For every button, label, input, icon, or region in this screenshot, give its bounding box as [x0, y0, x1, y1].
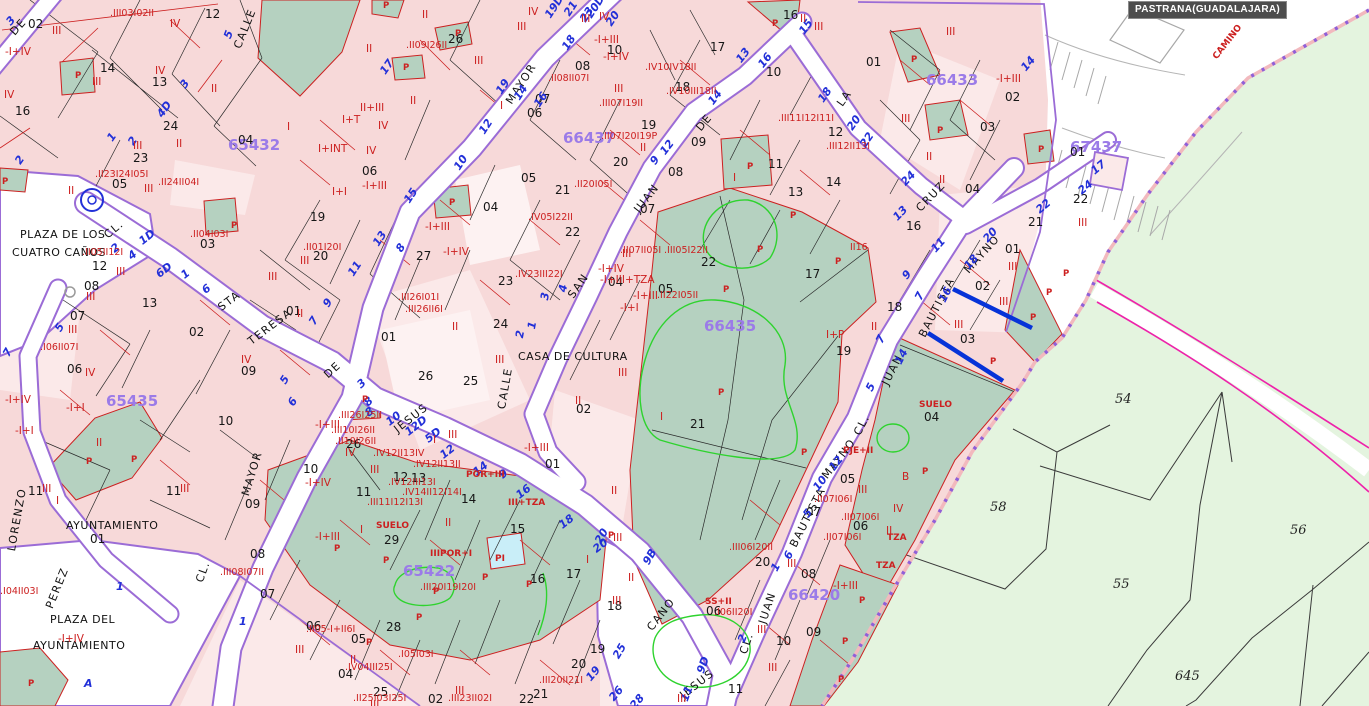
municipality-badge: PASTRANA(GUADALAJARA)	[1128, 1, 1287, 19]
height-code-label: II	[445, 518, 451, 529]
parcel-number-label: 07	[260, 588, 275, 600]
portal-number-label: 9	[321, 297, 334, 309]
patio-mark-label: P	[608, 532, 614, 541]
parcel-number-label: 28	[386, 621, 401, 633]
height-code-label: III	[954, 320, 963, 331]
height-code-label: III	[1008, 262, 1017, 273]
portal-number-label: 6D	[154, 261, 174, 280]
height-code-label: B	[902, 472, 909, 483]
special-code-label: SUELO	[919, 401, 952, 410]
parcel-number-label: 05	[521, 172, 536, 184]
portal-number-label: 3	[355, 377, 368, 390]
patio-mark-label: P	[75, 72, 81, 81]
height-code-label: III	[495, 355, 504, 366]
parcel-number-label: 01	[866, 56, 881, 68]
construction-code-label: .III07I19II	[599, 99, 643, 109]
map-viewport[interactable]: DECALLEMAYORDEJUANSANSTATERESADEJESUSMAY…	[0, 0, 1369, 706]
height-code-label: III	[295, 645, 304, 656]
portal-number-label: 4	[557, 283, 569, 292]
height-code-label: III	[757, 625, 766, 636]
parcel-number-label: 17	[566, 568, 581, 580]
construction-code-label: .II08II07I	[548, 74, 589, 84]
street-name-label: CL.	[194, 560, 212, 584]
block-number-label: 65435	[106, 394, 158, 409]
portal-number-label: 6	[286, 396, 299, 408]
height-code-label: -I+III	[425, 222, 450, 233]
parcel-number-label: 27	[416, 250, 431, 262]
special-code-label: CAMINO	[1212, 24, 1244, 62]
parcel-number-label: 19	[836, 345, 851, 357]
construction-code-label: .III12II13I	[826, 142, 870, 152]
parcel-number-label: 04	[924, 411, 939, 423]
parcel-number-label: 19	[641, 119, 656, 131]
street-name-label: BAUTISTA	[917, 276, 957, 339]
parcel-number-label: 07	[70, 310, 85, 322]
portal-number-label: 2	[13, 154, 26, 167]
construction-code-label: .III11I12I13I	[367, 498, 423, 508]
height-code-label: III	[370, 465, 379, 476]
patio-mark-label: P	[362, 396, 368, 405]
portal-number-label: 9	[648, 154, 661, 167]
portal-number-label: 5	[222, 29, 235, 40]
special-code-label: SUELO	[376, 522, 409, 531]
street-name-label: MAYOR	[240, 450, 264, 497]
patio-mark-label: P	[911, 56, 917, 65]
parcel-number-label: 21	[1028, 216, 1043, 228]
portal-number-label: 4D	[155, 99, 174, 119]
height-code-label: IV	[85, 368, 95, 379]
patio-mark-label: P	[383, 557, 389, 566]
patio-mark-label: P	[747, 163, 753, 172]
height-code-label: IV	[893, 504, 903, 515]
height-code-label: III	[86, 292, 95, 303]
parcel-number-label: 04	[238, 134, 253, 146]
patio-mark-label: P	[1046, 289, 1052, 298]
height-code-label: I	[287, 122, 290, 133]
parcel-number-label: 17	[710, 41, 725, 53]
height-code-label: I+T	[342, 115, 360, 126]
portal-number-label: 17	[378, 57, 396, 76]
construction-code-label: .II07I06I	[814, 495, 852, 505]
height-code-label: IV	[366, 146, 376, 157]
construction-code-label: .I05I03I	[398, 650, 434, 660]
special-code-label: SS+II	[705, 598, 732, 607]
parcel-number-label: 09	[806, 626, 821, 638]
construction-code-label: .IV05I22II	[528, 213, 573, 223]
portal-number-label: 18	[557, 513, 576, 531]
rural-parcel-label: 54	[1115, 393, 1132, 406]
portal-number-label: 17	[1089, 158, 1108, 176]
patio-mark-label: P	[86, 458, 92, 467]
construction-code-label: .III03I02II	[110, 9, 154, 19]
block-number-label: 66433	[926, 73, 978, 88]
parcel-number-label: 08	[801, 568, 816, 580]
patio-mark-label: P	[449, 199, 455, 208]
portal-number-label: 1	[105, 131, 118, 144]
height-code-label: -I+III	[362, 181, 387, 192]
construction-code-label: .III06I20II	[729, 543, 773, 553]
street-name-label: DE	[694, 112, 714, 133]
patio-mark-label: P	[416, 614, 422, 623]
special-code-label: PJE+II	[843, 447, 873, 456]
height-code-label: IV	[378, 121, 388, 132]
portal-number-label: 28	[628, 692, 646, 706]
street-name-label: CALLE	[496, 367, 514, 410]
parcel-number-label: 09	[245, 498, 260, 510]
patio-mark-label: P	[937, 127, 943, 136]
height-code-label: III	[52, 26, 61, 37]
height-code-label: II+III	[360, 103, 384, 114]
parcel-number-label: 21	[533, 688, 548, 700]
portal-number-label: 5	[864, 381, 877, 393]
height-code-label: III	[999, 297, 1008, 308]
construction-code-label: .IV12II13II	[413, 460, 461, 470]
construction-code-label: .II01I20I	[303, 243, 341, 253]
parcel-number-label: 08	[575, 60, 590, 72]
height-code-label: -I+IV	[305, 478, 331, 489]
height-code-label: III	[677, 694, 686, 705]
special-code-label: TZA	[876, 562, 896, 571]
street-name-label: LA	[835, 88, 854, 108]
parcel-number-label: 01	[90, 533, 105, 545]
height-code-label: III	[618, 368, 627, 379]
parcel-number-label: 11	[166, 485, 181, 497]
height-code-label: I	[660, 412, 663, 423]
special-code-label: IIIPOR+I	[430, 550, 472, 559]
height-code-label: III	[858, 485, 867, 496]
height-code-label: II	[366, 44, 372, 55]
place-name-label: AYUNTAMIENTO	[66, 520, 158, 531]
rural-parcel-label: 645	[1175, 670, 1200, 683]
patio-mark-label: P	[526, 581, 532, 590]
construction-code-label: .II04I03I	[190, 230, 228, 240]
parcel-number-label: 12	[92, 260, 107, 272]
height-code-label: III	[133, 141, 142, 152]
height-code-label: III	[180, 484, 189, 495]
height-code-label: II	[939, 175, 945, 186]
portal-number-label: 2	[514, 329, 526, 338]
construction-code-label: .I06II20I	[714, 608, 752, 618]
street-name-label: CL.	[852, 413, 872, 437]
patio-mark-label: P	[757, 246, 763, 255]
height-code-label: III	[814, 22, 823, 33]
street-name-label: JUAN	[757, 591, 778, 626]
construction-code-label: .III26I01I	[398, 293, 439, 303]
portal-number-label: 9	[900, 268, 913, 281]
height-code-label: IV	[599, 12, 609, 23]
patio-mark-label: P	[334, 545, 340, 554]
parcel-number-label: 02	[1005, 91, 1020, 103]
patio-mark-label: P	[922, 468, 928, 477]
portal-number-label: 5	[278, 374, 291, 386]
parcel-number-label: 06	[67, 363, 82, 375]
construction-code-label: .III26I25II	[338, 411, 382, 421]
height-code-label: II	[800, 14, 806, 25]
patio-mark-label: P	[718, 389, 724, 398]
parcel-number-label: 14	[826, 176, 841, 188]
height-code-label: III	[474, 56, 483, 67]
patio-mark-label: P	[482, 574, 488, 583]
parcel-number-label: 11	[28, 485, 43, 497]
portal-number-label: 9B	[641, 547, 659, 566]
parcel-number-label: 15	[510, 523, 525, 535]
patio-mark-label: P	[801, 449, 807, 458]
parcel-number-label: 21	[555, 184, 570, 196]
height-code-label: -I+IV	[58, 634, 84, 645]
patio-mark-label: P	[433, 588, 439, 597]
parcel-number-label: 10	[218, 415, 233, 427]
rural-parcel-label: 55	[1113, 578, 1130, 591]
height-code-label: III	[370, 700, 379, 706]
height-code-label: II	[350, 655, 356, 666]
height-code-label: III	[268, 272, 277, 283]
patio-mark-label: P	[723, 286, 729, 295]
height-code-label: IV	[4, 90, 14, 101]
patio-mark-label: P	[2, 178, 8, 187]
height-code-label: II	[871, 322, 877, 333]
height-code-label: III	[946, 27, 955, 38]
height-code-label: III	[901, 114, 910, 125]
height-code-label: -I+III	[996, 74, 1021, 85]
parcel-number-label: 04	[965, 183, 980, 195]
parcel-number-label: 14	[461, 493, 476, 505]
height-code-label: IV	[345, 448, 355, 459]
portal-number-label: 19	[584, 664, 602, 683]
patio-mark-label: P	[28, 680, 34, 689]
parcel-number-label: 13	[152, 76, 167, 88]
portal-number-label: A	[84, 678, 93, 689]
construction-code-label: .II22I05II	[657, 291, 698, 301]
height-code-label: III	[612, 596, 621, 607]
height-code-label: III	[42, 484, 51, 495]
portal-number-label: 7	[913, 290, 926, 302]
street-name-label: CALLE	[232, 7, 258, 50]
height-code-label: -I+IV	[603, 52, 629, 63]
height-code-label: -I+III	[524, 443, 549, 454]
height-code-label: -I+I	[66, 403, 85, 414]
height-code-label: II	[575, 396, 581, 407]
portal-number-label: 22	[1034, 197, 1053, 215]
special-code-label: TZA	[887, 534, 907, 543]
parcel-number-label: 06	[362, 165, 377, 177]
parcel-number-label: 03	[960, 333, 975, 345]
street-name-label: STA	[216, 289, 242, 313]
patio-mark-label: P	[366, 639, 372, 648]
place-name-label: PLAZA DEL	[50, 614, 115, 625]
height-code-label: III	[68, 325, 77, 336]
height-code-label: II	[422, 10, 428, 21]
portal-number-label: 7	[307, 315, 320, 327]
parcel-number-label: 19	[590, 643, 605, 655]
height-code-label: -I+IV	[443, 247, 469, 258]
height-code-label: I	[586, 555, 589, 566]
construction-code-label: .II07I06I	[823, 533, 861, 543]
construction-code-label: .II05-I+II6I	[306, 625, 355, 635]
height-code-label: I	[56, 496, 59, 507]
portal-number-label: 18	[816, 85, 834, 104]
patio-mark-label: P	[455, 30, 461, 39]
height-code-label: II	[297, 309, 303, 320]
patio-mark-label: P	[790, 212, 796, 221]
parcel-number-label: 10	[776, 635, 791, 647]
construction-code-label: .IV12II13IV	[373, 449, 424, 459]
portal-number-label: 11	[929, 236, 947, 255]
street-name-label: CL.	[102, 218, 126, 240]
block-number-label: 66435	[704, 319, 756, 334]
block-number-label: 65432	[228, 138, 280, 153]
parcel-number-label: 08	[668, 166, 683, 178]
height-code-label: II	[926, 152, 932, 163]
parcel-number-label: 16	[906, 220, 921, 232]
height-code-label: II	[640, 143, 646, 154]
construction-code-label: .I04II03I	[0, 587, 38, 597]
height-code-label: -I+IV	[5, 47, 31, 58]
portal-number-label: 1	[526, 320, 538, 329]
height-code-label: -I+III	[315, 532, 340, 543]
height-code-label: -I+I	[620, 303, 639, 314]
construction-code-label: .II23I24I05I	[95, 170, 148, 180]
height-code-label: -I+IV	[5, 395, 31, 406]
parcel-number-label: 02	[975, 280, 990, 292]
height-code-label: II	[211, 84, 217, 95]
construction-code-label: .II07I06I	[841, 513, 879, 523]
height-code-label: -I+III	[315, 420, 340, 431]
construction-code-label: .III20II21I	[539, 676, 583, 686]
height-code-label: III	[581, 14, 590, 25]
parcel-number-label: 20	[571, 658, 586, 670]
portal-number-label: 14	[1019, 54, 1037, 73]
height-code-label: II	[68, 186, 74, 197]
portal-number-label: 12	[438, 443, 457, 461]
portal-number-label: 1	[769, 561, 782, 573]
height-code-label: IV	[155, 66, 165, 77]
portal-number-label: 1	[179, 267, 192, 280]
special-code-label: PI	[495, 555, 505, 564]
height-code-label: -I+IV	[598, 264, 624, 275]
parcel-number-label: 18	[887, 301, 902, 313]
portal-number-label: 5	[53, 321, 66, 333]
parcel-number-label: 01	[1005, 243, 1020, 255]
portal-number-label: 4	[126, 248, 139, 261]
patio-mark-label: P	[842, 638, 848, 647]
construction-code-label: .I06II07I	[40, 343, 78, 353]
portal-number-label: 15	[402, 186, 420, 205]
construction-code-label: .IV23III22I	[515, 270, 563, 280]
height-code-label: II	[452, 322, 458, 333]
height-code-label: IV	[528, 7, 538, 18]
patio-mark-label: P	[231, 222, 237, 231]
height-code-label: III	[92, 77, 101, 88]
parcel-number-label: 03	[980, 121, 995, 133]
height-code-label: III	[1078, 218, 1087, 229]
height-code-label: -I+III	[633, 291, 658, 302]
patio-mark-label: P	[990, 358, 996, 367]
height-code-label: I	[500, 101, 503, 112]
height-code-label: III	[787, 559, 796, 570]
portal-number-label: 26	[607, 684, 625, 703]
parcel-number-label: 07	[640, 203, 655, 215]
portal-number-label: 1	[239, 616, 247, 627]
height-code-label: I	[360, 525, 363, 536]
construction-code-label: .II07I20I19P	[601, 132, 657, 142]
parcel-number-label: 12	[205, 8, 220, 20]
parcel-number-label: 11	[768, 158, 783, 170]
patio-mark-label: P	[383, 2, 389, 11]
parcel-number-label: 21	[690, 418, 705, 430]
place-name-label: PLAZA DE LOS	[20, 229, 105, 240]
special-code-label: III+TZA	[508, 499, 545, 508]
height-code-label: II	[96, 438, 102, 449]
construction-code-label: .III05I22II	[664, 246, 708, 256]
height-code-label: -I+III	[594, 35, 619, 46]
parcel-number-label: 08	[250, 548, 265, 560]
parcel-number-label: 16	[783, 9, 798, 21]
parcel-number-label: 02	[428, 693, 443, 705]
parcel-number-label: 24	[163, 120, 178, 132]
height-code-label: -I+I	[15, 426, 34, 437]
height-code-label: -I+III+TZA	[600, 275, 655, 286]
construction-code-label: .III11I12I11I	[778, 114, 834, 124]
parcel-number-label: 20	[613, 156, 628, 168]
portal-number-label: 12	[477, 117, 495, 136]
portal-number-label: 13	[734, 46, 752, 65]
construction-code-label: .II05II12I	[82, 248, 123, 258]
street-name-label: PEREZ	[44, 566, 70, 610]
parcel-number-label: 29	[384, 534, 399, 546]
patio-mark-label: P	[835, 258, 841, 267]
rural-parcel-label: 58	[990, 501, 1007, 514]
height-code-label: III	[144, 184, 153, 195]
height-code-label: III	[622, 249, 631, 260]
place-name-label: CASA DE CULTURA	[518, 351, 628, 362]
construction-code-label: .II09I26II	[406, 41, 447, 51]
parcel-number-label: 17	[805, 268, 820, 280]
parcel-number-label: 02	[28, 18, 43, 30]
parcel-number-label: 11	[728, 683, 743, 695]
portal-number-label: 18	[560, 33, 578, 52]
construction-code-label: .II20I05I	[574, 180, 612, 190]
parcel-number-label: 26	[418, 370, 433, 382]
parcel-number-label: 02	[189, 326, 204, 338]
parcel-number-label: 14	[100, 62, 115, 74]
portal-number-label: 20	[845, 113, 863, 132]
street-name-label: DE	[322, 360, 343, 381]
parcel-number-label: 22	[519, 693, 534, 705]
height-code-label: I+P	[826, 330, 844, 341]
height-code-label: III	[448, 430, 457, 441]
portal-number-label: 3	[539, 291, 551, 300]
parcel-number-label: 16	[530, 573, 545, 585]
portal-number-label: 25	[611, 642, 628, 661]
parcel-number-label: 05	[840, 473, 855, 485]
construction-code-label: .IV10III18II	[666, 87, 717, 97]
patio-mark-label: P	[772, 20, 778, 29]
portal-number-label: 7	[874, 333, 887, 345]
parcel-number-label: 23	[133, 152, 148, 164]
patio-mark-label: P	[131, 456, 137, 465]
construction-code-label: II16	[850, 243, 868, 253]
portal-number-label: 7	[1, 346, 14, 358]
height-code-label: -I+III	[833, 581, 858, 592]
construction-code-label: .III08I07II	[220, 568, 264, 578]
portal-number-label: 3	[178, 78, 191, 91]
parcel-number-label: 23	[498, 275, 513, 287]
parcel-number-label: 19	[310, 211, 325, 223]
parcel-number-label: 01	[1070, 146, 1085, 158]
construction-code-label: .III20I19I20I	[420, 583, 476, 593]
parcel-number-label: 25	[463, 375, 478, 387]
street-name-label: CANO	[645, 596, 677, 633]
